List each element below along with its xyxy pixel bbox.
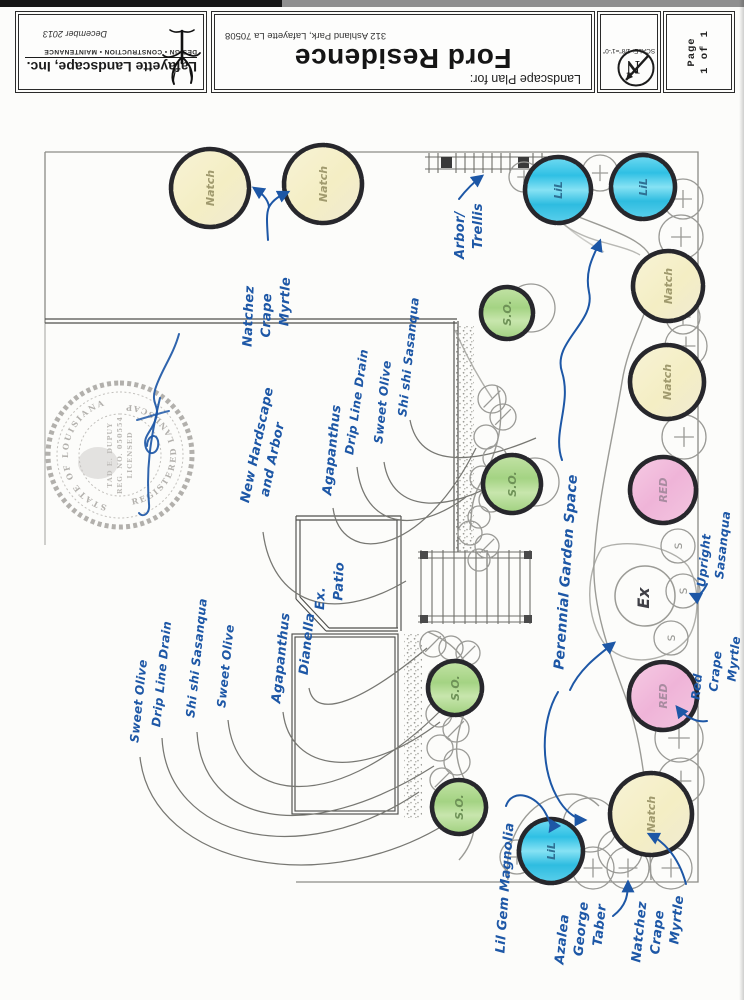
plant-tag: RED — [657, 683, 670, 708]
small-plant-circle — [662, 415, 706, 459]
small-plant-circle — [478, 385, 506, 413]
plant-circle-yellow: Natch — [595, 758, 706, 869]
plant-tag: Natch — [317, 166, 330, 202]
plant-tag: S.O. — [453, 794, 466, 819]
svg-text:s: s — [664, 634, 679, 641]
small-plant-circle — [427, 735, 453, 761]
plant-circle-pink: RED — [629, 456, 696, 523]
natchez-top-arrow — [254, 188, 269, 240]
plant-tag: LiL — [637, 178, 650, 196]
plant-tag: RED — [657, 477, 670, 502]
drip-drain-strip — [404, 634, 422, 818]
plant-tag: Natch — [661, 364, 674, 400]
plant-tag: Natch — [645, 796, 658, 832]
seal-reg-no: REG. NO. 050554 — [116, 416, 124, 494]
plant-circle-green: S.O. — [427, 660, 484, 717]
plant-circle-yellow: Natch — [275, 136, 371, 232]
new-arbor-structure — [418, 550, 532, 624]
scanned-landscape-plan-sheet: Lafayette Landscape, Inc. DESIGN • CONST… — [0, 0, 744, 1000]
plant-tag: S.O. — [449, 675, 462, 700]
arbor-trellis-arrow — [459, 176, 482, 199]
plant-circle-yellow: Natch — [155, 133, 264, 242]
plant-tag: S.O. — [501, 300, 514, 325]
plant-circle-yellow: Natch — [626, 244, 709, 327]
small-plant-circle: s — [661, 529, 695, 563]
small-plant-circle: s — [654, 621, 688, 655]
small-plant-circle — [443, 716, 469, 742]
existing-plant-circle: Ex — [615, 566, 675, 626]
plant-circle-green: S.O. — [478, 284, 537, 343]
perennial-mid-arrow — [570, 643, 614, 690]
seal-licensed: LICENSED — [126, 432, 134, 479]
plant-circle-pink: RED — [617, 650, 708, 741]
perennial-up-arrow — [559, 241, 600, 460]
plant-tag: S.O. — [506, 471, 519, 496]
plant-tag: LiL — [552, 181, 565, 199]
plant-circle-green: S.O. — [422, 770, 496, 844]
svg-text:s: s — [676, 587, 691, 594]
house-walls — [45, 319, 458, 814]
plan-drawing: Ex STATE OF LOUISIANA REGISTERED LANDSCA… — [0, 0, 744, 1000]
small-plant-circle: s — [666, 574, 700, 608]
small-plant-circle — [439, 636, 463, 660]
plant-tag: Natch — [204, 170, 217, 206]
plant-tag: LiL — [545, 842, 558, 860]
svg-text:s: s — [671, 542, 686, 549]
architect-seal: STATE OF LOUISIANA REGISTERED LANDSCAPE … — [48, 383, 192, 527]
plant-circle-blue: LiL — [508, 808, 595, 895]
plant-tag: Natch — [662, 268, 675, 304]
existing-plant-label: Ex — [634, 587, 653, 609]
